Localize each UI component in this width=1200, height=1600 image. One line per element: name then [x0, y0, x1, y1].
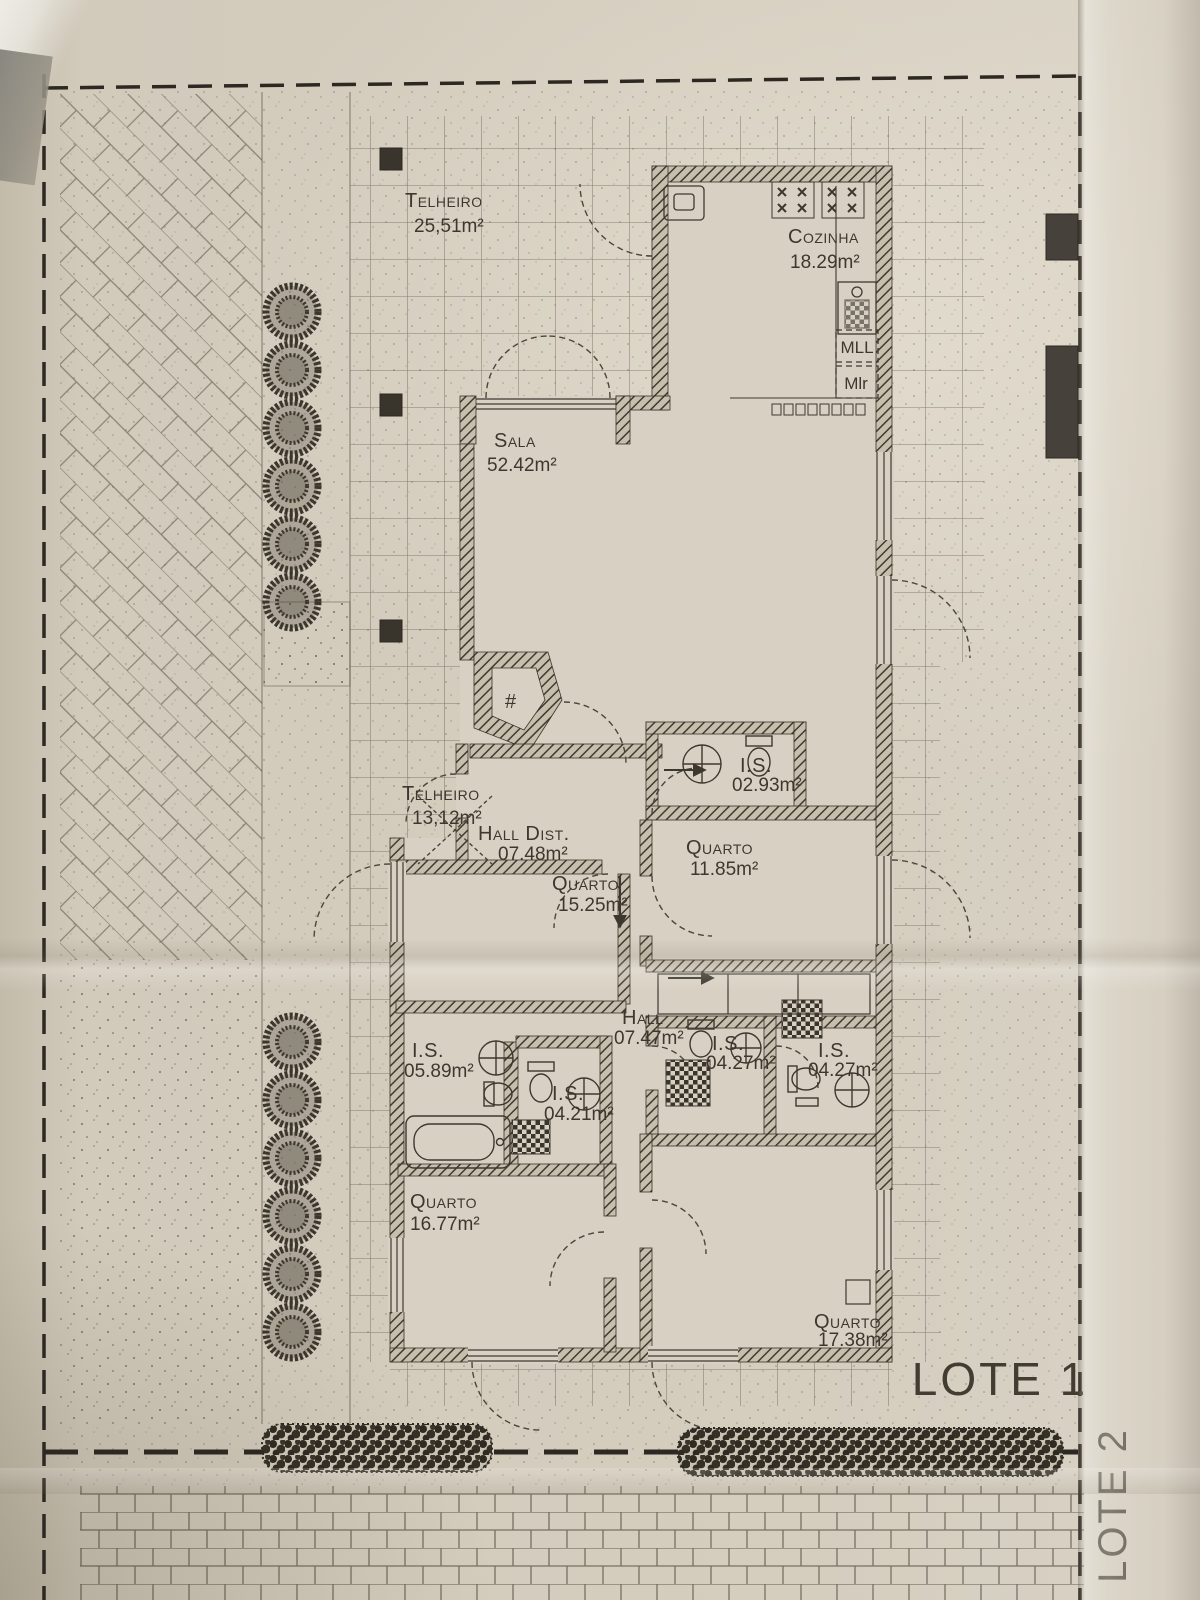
- room-label-is0427b-name: I.S.: [818, 1040, 850, 1062]
- room-label-is0589-area: 05.89m²: [404, 1061, 474, 1082]
- room-label-quarto1185-name: Quarto: [686, 837, 753, 859]
- room-label-sala-area: 52.42m²: [487, 455, 557, 476]
- room-label-telheiro2-name: Telheiro: [402, 783, 480, 805]
- post-column: [380, 620, 402, 642]
- shower-icon: [782, 1000, 822, 1038]
- room-label-cozinha-name: Cozinha: [788, 226, 859, 248]
- boundary-top: [44, 76, 1080, 88]
- floor-plan-photo: Telheiro 25,51m² Cozinha 18.29m² Sala 52…: [0, 0, 1200, 1600]
- garden-paving-herringbone: [60, 94, 262, 960]
- lot1-label: LOTE 1: [912, 1353, 1089, 1405]
- room-label-is0293-name: I.S.: [740, 755, 772, 777]
- room-label-is0421-area: 04.21m²: [544, 1104, 614, 1125]
- window: [874, 576, 894, 664]
- room-label-telheiro2-area: 13,12m²: [412, 808, 482, 829]
- boundary-gate: [1046, 346, 1078, 458]
- room-label-telheiro1-area: 25,51m²: [414, 216, 484, 237]
- patio-door: [468, 1346, 558, 1364]
- boundary-gate: [1046, 214, 1078, 260]
- room-label-is0427a-name: I.S.: [712, 1033, 744, 1055]
- room-label-quarto1525-area: 15.25m²: [558, 895, 628, 916]
- room-label-telheiro1-name: Telheiro: [405, 190, 483, 212]
- washbasin-icon: [683, 745, 721, 783]
- room-label-is0427a-area: 04.27m²: [706, 1053, 776, 1074]
- room-label-hall-name: Hall: [622, 1007, 663, 1029]
- window: [874, 1190, 894, 1270]
- washbasin-icon: [479, 1041, 513, 1075]
- room-label-halldist-name: Hall Dist.: [478, 823, 570, 845]
- patio-door: [648, 1346, 738, 1364]
- room-label-quarto1677-name: Quarto: [410, 1191, 477, 1213]
- shower-icon: [512, 1120, 550, 1154]
- window: [874, 856, 894, 944]
- window: [388, 862, 406, 942]
- lot2-label: LOTE 2: [1091, 1427, 1135, 1583]
- room-label-is0293-area: 02.93m²: [732, 775, 802, 796]
- post-column: [380, 394, 402, 416]
- fireplace-mark: #: [505, 691, 517, 713]
- room-label-is0589-name: I.S.: [412, 1040, 444, 1062]
- post-column: [380, 148, 402, 170]
- room-label-quarto1738-area: 17.38m²: [818, 1330, 888, 1351]
- street-paving: [80, 1486, 1084, 1600]
- hedge: [678, 1428, 1063, 1476]
- room-label-sala-name: Sala: [494, 430, 536, 452]
- washing-machine-label: MLL: [840, 338, 873, 357]
- room-label-quarto1677-area: 16.77m²: [410, 1214, 480, 1235]
- window: [388, 1238, 406, 1312]
- room-label-halldist-area: 07.48m²: [498, 844, 568, 865]
- dryer-label: Mlr: [844, 374, 868, 393]
- shower-icon: [666, 1060, 710, 1106]
- garden-lower-stipple: [60, 960, 262, 1424]
- room-label-cozinha-area: 18.29m²: [790, 252, 860, 273]
- room-label-is0427b-area: 04.27m²: [808, 1060, 878, 1081]
- room-label-quarto1525-name: Quarto: [552, 873, 619, 895]
- hedge: [262, 1424, 492, 1472]
- window: [874, 452, 894, 540]
- floor-plan-drawing: Telheiro 25,51m² Cozinha 18.29m² Sala 52…: [0, 0, 1200, 1600]
- room-label-is0421-name: I.S.: [552, 1083, 584, 1105]
- room-label-quarto1185-area: 11.85m²: [690, 859, 758, 880]
- room-label-hall-area: 07.47m²: [614, 1028, 684, 1049]
